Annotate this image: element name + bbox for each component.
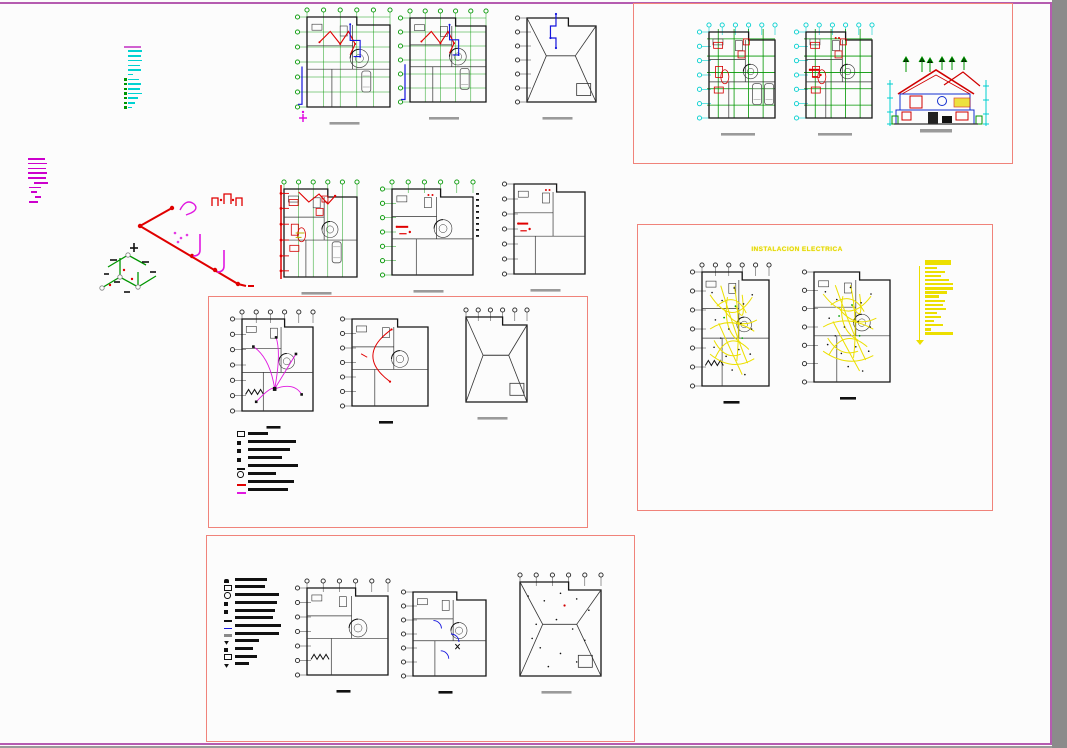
right-gray-strip (1052, 0, 1067, 748)
plan-ground-floor-architecture[interactable] (695, 20, 781, 138)
legend-electrical-yellow[interactable] (916, 260, 962, 350)
general-notes-magenta[interactable] (28, 158, 48, 206)
plan-upper-floor-comms[interactable] (338, 307, 434, 426)
plan-ground-floor-sanitary[interactable] (293, 5, 396, 127)
legend-lighting-symbols[interactable] (224, 577, 281, 669)
plan-ground-floor-comms[interactable] (228, 307, 319, 431)
legend-comms-symbols[interactable] (237, 431, 298, 496)
front-elevation[interactable] (884, 54, 992, 136)
plan-ground-floor-lighting[interactable] (293, 576, 394, 695)
roof-plan-sanitary[interactable] (513, 6, 602, 122)
roof-plan-comms[interactable] (452, 305, 533, 422)
plan-ground-floor-water-supply[interactable] (270, 177, 363, 297)
plan-upper-floor-electrical[interactable] (800, 260, 896, 402)
plan-upper-floor-water-supply[interactable] (378, 177, 479, 295)
plan-upper-floor-architecture[interactable] (792, 20, 878, 138)
roof-plan-lighting[interactable] (506, 570, 607, 696)
notes-cyan[interactable] (124, 46, 142, 111)
roof-plan-water-supply[interactable] (500, 172, 591, 294)
sanitary-isometric-diagram[interactable] (80, 188, 275, 303)
electrical-layout-title: INSTALACION ELECTRICA (735, 246, 859, 253)
cad-model-space-canvas[interactable]: INSTALACION ELECTRICA (0, 0, 1067, 748)
plan-upper-floor-sanitary[interactable] (396, 6, 492, 122)
plan-upper-floor-lighting[interactable] (399, 580, 492, 696)
plan-ground-floor-electrical[interactable] (688, 260, 775, 406)
